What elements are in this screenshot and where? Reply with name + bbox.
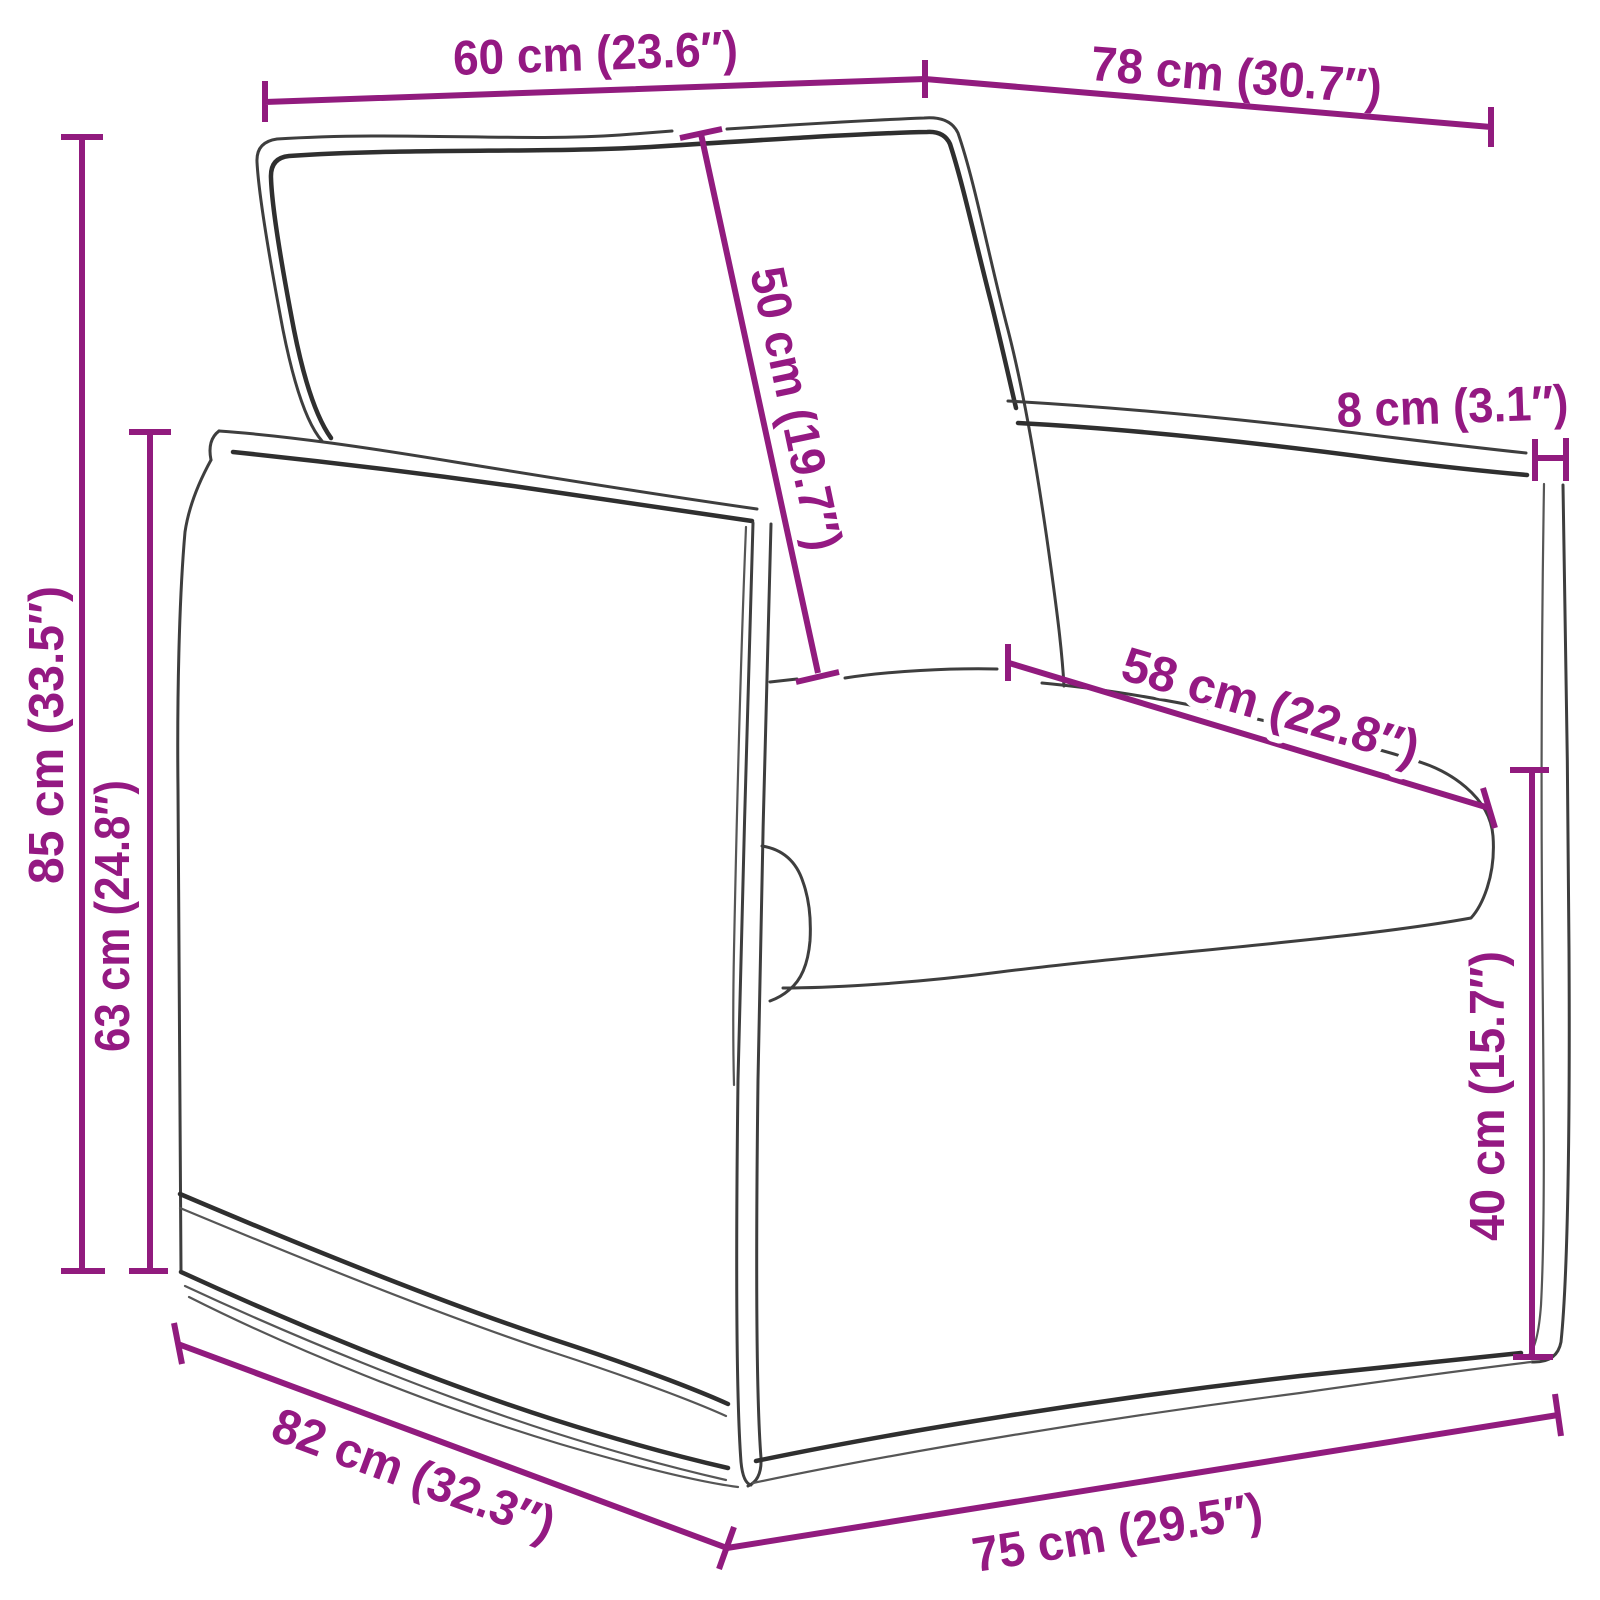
svg-text:8 cm (3.1″): 8 cm (3.1″): [1336, 376, 1570, 438]
svg-text:63 cm (24.8″): 63 cm (24.8″): [86, 780, 140, 1052]
svg-text:40 cm (15.7″): 40 cm (15.7″): [1461, 951, 1515, 1241]
svg-text:85 cm (33.5″): 85 cm (33.5″): [20, 586, 74, 884]
svg-text:60 cm (23.6″): 60 cm (23.6″): [452, 22, 739, 86]
